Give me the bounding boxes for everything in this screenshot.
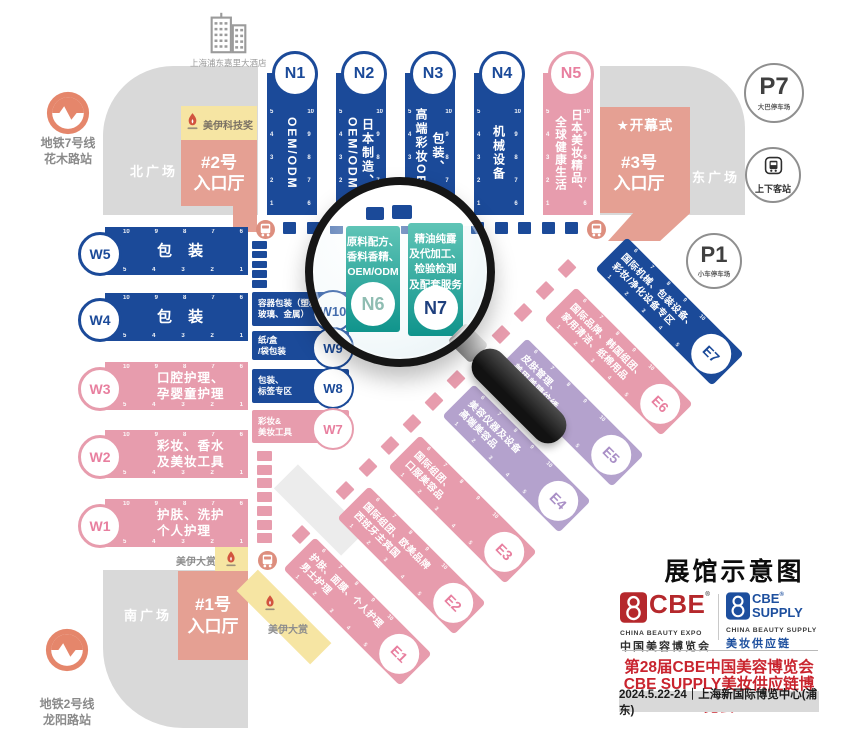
dropoff-bus-icon [764, 156, 783, 180]
booth-box [291, 525, 310, 544]
booth-box [491, 325, 510, 344]
hall-n5-badge: N5 [548, 51, 594, 97]
booth-box [366, 207, 384, 220]
logo-divider [718, 594, 719, 640]
booth-box [402, 414, 421, 433]
hall-n7: 精油纯露 及代加工、 检验检测 及配套服务 N7 [408, 223, 463, 336]
hall-w3: W3 口腔护理、 孕婴童护理 109876 54321 [105, 362, 248, 410]
entrance-2: #2号 入口厅 [181, 140, 257, 206]
map-title: 展馆示意图 [652, 552, 817, 588]
metro-line2-icon [44, 627, 90, 678]
booth-box [392, 205, 412, 219]
award-flame-icon [224, 550, 238, 573]
cbe-supply-logo-text2: SUPPLY [752, 606, 803, 620]
hall-number-scale: 54321 [270, 109, 273, 207]
booth-box [536, 281, 555, 300]
booth-box [257, 520, 272, 530]
award-grand-label: 美伊大赏 [176, 553, 216, 568]
hall-number-scale: 109876 [123, 432, 243, 438]
hall-n7-badge: N7 [414, 286, 458, 330]
booth-box [447, 370, 466, 389]
hall-number-scale: 109876 [514, 109, 521, 207]
award-flame-icon [185, 112, 200, 136]
booth-box [257, 451, 272, 461]
cbe-logo-text: CBE [649, 592, 705, 617]
venue-map: 北广场 东广场 南广场 上海浦东嘉里大酒店 地铁7 [0, 0, 864, 754]
cbe-supply-logo-en: CHINA BEAUTY SUPPLY [726, 627, 817, 634]
booth-box [257, 478, 272, 488]
hall-w7: 彩妆& 美妆工具 W7 [252, 410, 349, 443]
cbe-supply-logo-cn: 美妆供应链 [726, 635, 817, 651]
cbe-supply-logo-icon [726, 592, 750, 625]
footer-divider [622, 650, 818, 651]
hall-number-scale: 54321 [123, 539, 243, 545]
hall-e4-badge: E4 [530, 472, 587, 529]
entrance-3-label-wrap: #3号 入口厅 [600, 140, 678, 206]
booth-box [257, 506, 272, 516]
hall-number-scale: 109876 [123, 364, 243, 370]
hall-n2-badge: N2 [341, 51, 387, 97]
award-tech-label: 美伊科技奖 [203, 117, 253, 132]
date-venue-bar: 2024.5.22-24｜上海新国际博览中心(浦东) [619, 691, 819, 712]
booth-box [252, 251, 267, 259]
hall-w7-badge: W7 [312, 408, 354, 450]
hall-w5-badge: W5 [78, 232, 122, 276]
metro-line7-label: 地铁7号线 花木路站 [30, 136, 106, 167]
hall-w2-label: 彩妆、香水 及美妆工具 [157, 438, 225, 471]
hall-e3-badge: E3 [476, 523, 533, 580]
booth-box [283, 222, 296, 234]
registered-mark: ® [779, 592, 783, 598]
parking-p7-code: P7 [759, 75, 788, 99]
hall-w2-badge: W2 [78, 435, 122, 479]
booth-box [252, 261, 267, 269]
hall-e2-badge: E2 [425, 574, 482, 631]
hall-number-scale: 109876 [583, 109, 590, 207]
shuttle-bus-icon [258, 551, 277, 575]
booth-box [565, 222, 578, 234]
hall-w8-badge: W8 [312, 367, 354, 409]
metro-line2-label: 地铁2号线 龙阳路站 [28, 697, 106, 728]
booth-box [252, 241, 267, 249]
booth-box [513, 303, 532, 322]
logos-row: CBE ® CHINA BEAUTY EXPO 中国美容博览会 CBE® SUP… [620, 592, 820, 654]
award-flame-icon [263, 594, 277, 617]
hall-w3-badge: W3 [78, 367, 122, 411]
hall-w8-label: 包装、 标签专区 [258, 375, 292, 397]
entrance-1-label: #1号 入口厅 [188, 594, 239, 637]
hall-n7-label: 精油纯露 及代加工、 检验检测 及配套服务 [408, 232, 463, 293]
hall-w1-label: 护肤、洗护 个人护理 [157, 507, 225, 540]
booth-box [257, 492, 272, 502]
hall-w5-label: 包 装 [157, 241, 209, 261]
east-plaza-label: 东广场 [692, 167, 740, 186]
registered-mark: ® [705, 592, 709, 598]
booth-box [425, 392, 444, 411]
hotel-icon [203, 10, 253, 56]
booth-box [518, 222, 531, 234]
hall-e3-label: 国际组团、 口服美容品 [401, 448, 455, 502]
hall-n5: N5 日本美妆精品、 全球健康生活 54321 109876 [543, 73, 593, 215]
booth-box [358, 458, 377, 477]
north-plaza-label: 北广场 [130, 161, 178, 180]
hall-n4-badge: N4 [479, 51, 525, 97]
cbe-supply-logo-text: CBE [752, 591, 779, 606]
parking-p7: P7 大巴停车场 [744, 63, 804, 123]
booth-box [495, 222, 508, 234]
hall-e5-badge: E5 [583, 426, 640, 483]
hall-number-scale: 54321 [546, 109, 549, 207]
booth-box [380, 436, 399, 455]
parking-p1-label: 小车停车场 [698, 268, 731, 278]
lens-background [308, 180, 492, 226]
booth-box [252, 270, 267, 278]
hall-number-scale: 54321 [123, 402, 243, 408]
hall-number-scale: 109876 [123, 501, 243, 507]
booth-box [558, 259, 577, 278]
dropoff-label: 上下客站 [755, 182, 791, 195]
hall-e1-badge: E1 [371, 625, 428, 682]
hall-n6-badge: N6 [351, 282, 395, 326]
hall-number-scale: 54321 [123, 333, 243, 339]
hall-w1: W1 护肤、洗护 个人护理 109876 54321 [105, 499, 248, 547]
hall-number-scale: 54321 [123, 267, 243, 273]
hall-w4-badge: W4 [78, 298, 122, 342]
hall-number-scale: 109876 [123, 295, 243, 301]
cbe-supply-logo: CBE® SUPPLY CHINA BEAUTY SUPPLY 美妆供应链 [726, 592, 817, 651]
shuttle-bus-icon [587, 220, 606, 244]
booth-box [252, 280, 267, 288]
hall-n6: 原料配方、 香料香精、 OEM/ODM N6 [346, 226, 400, 332]
hall-e6-badge: E6 [632, 375, 689, 432]
cbe-logo-cn: 中国美容博览会 [620, 638, 711, 654]
entrance-1: #1号 入口厅 [178, 571, 248, 660]
hall-w1-badge: W1 [78, 504, 122, 548]
metro-line7-icon [45, 90, 91, 141]
award-tech-box: 美伊科技奖 [181, 106, 257, 140]
booth-box [257, 533, 272, 543]
booth-box [336, 481, 355, 500]
opening-ceremony-label: ★开幕式 [600, 114, 690, 134]
award-grand-diag-label: 美伊大赏 [268, 621, 308, 636]
booth-box [542, 222, 555, 234]
dropoff-station: 上下客站 [745, 147, 801, 203]
hall-e7-badge: E7 [683, 325, 740, 382]
hall-w9-label: 纸/盒 /袋包装 [258, 334, 286, 356]
parking-p1-code: P1 [701, 244, 728, 266]
hall-n1-badge: N1 [272, 51, 318, 97]
hall-w3-label: 口腔护理、 孕婴童护理 [157, 370, 225, 403]
cbe-logo: CBE ® CHINA BEAUTY EXPO 中国美容博览会 [620, 592, 711, 654]
hall-w7-label: 彩妆& 美妆工具 [258, 415, 292, 437]
south-plaza-label: 南广场 [124, 605, 172, 624]
parking-p7-label: 大巴停车场 [758, 101, 791, 111]
hall-w8: 包装、 标签专区 W8 [252, 369, 349, 403]
hall-w5: W5 包 装 109876 54321 [105, 227, 248, 275]
hall-number-scale: 109876 [123, 229, 243, 235]
booth-box [257, 465, 272, 475]
hall-w4-label: 包 装 [157, 307, 209, 327]
award-grand-box [215, 547, 248, 573]
cbe-logo-en: CHINA BEAUTY EXPO [620, 630, 711, 637]
hall-n3-badge: N3 [410, 51, 456, 97]
entrance-3-tab [608, 213, 692, 241]
entrance-3-label: #3号 入口厅 [614, 152, 665, 195]
parking-p1: P1 小车停车场 [686, 233, 742, 289]
entrance-2-label: #2号 入口厅 [194, 152, 245, 195]
hall-w4: W4 包 装 109876 54321 [105, 293, 248, 341]
cbe-logo-icon [620, 592, 647, 628]
hall-number-scale: 54321 [123, 470, 243, 476]
hotel-label: 上海浦东嘉里大酒店 [190, 57, 267, 69]
hall-w2: W2 彩妆、香水 及美妆工具 109876 54321 [105, 430, 248, 478]
hall-n6-label: 原料配方、 香料香精、 OEM/ODM [346, 235, 400, 281]
